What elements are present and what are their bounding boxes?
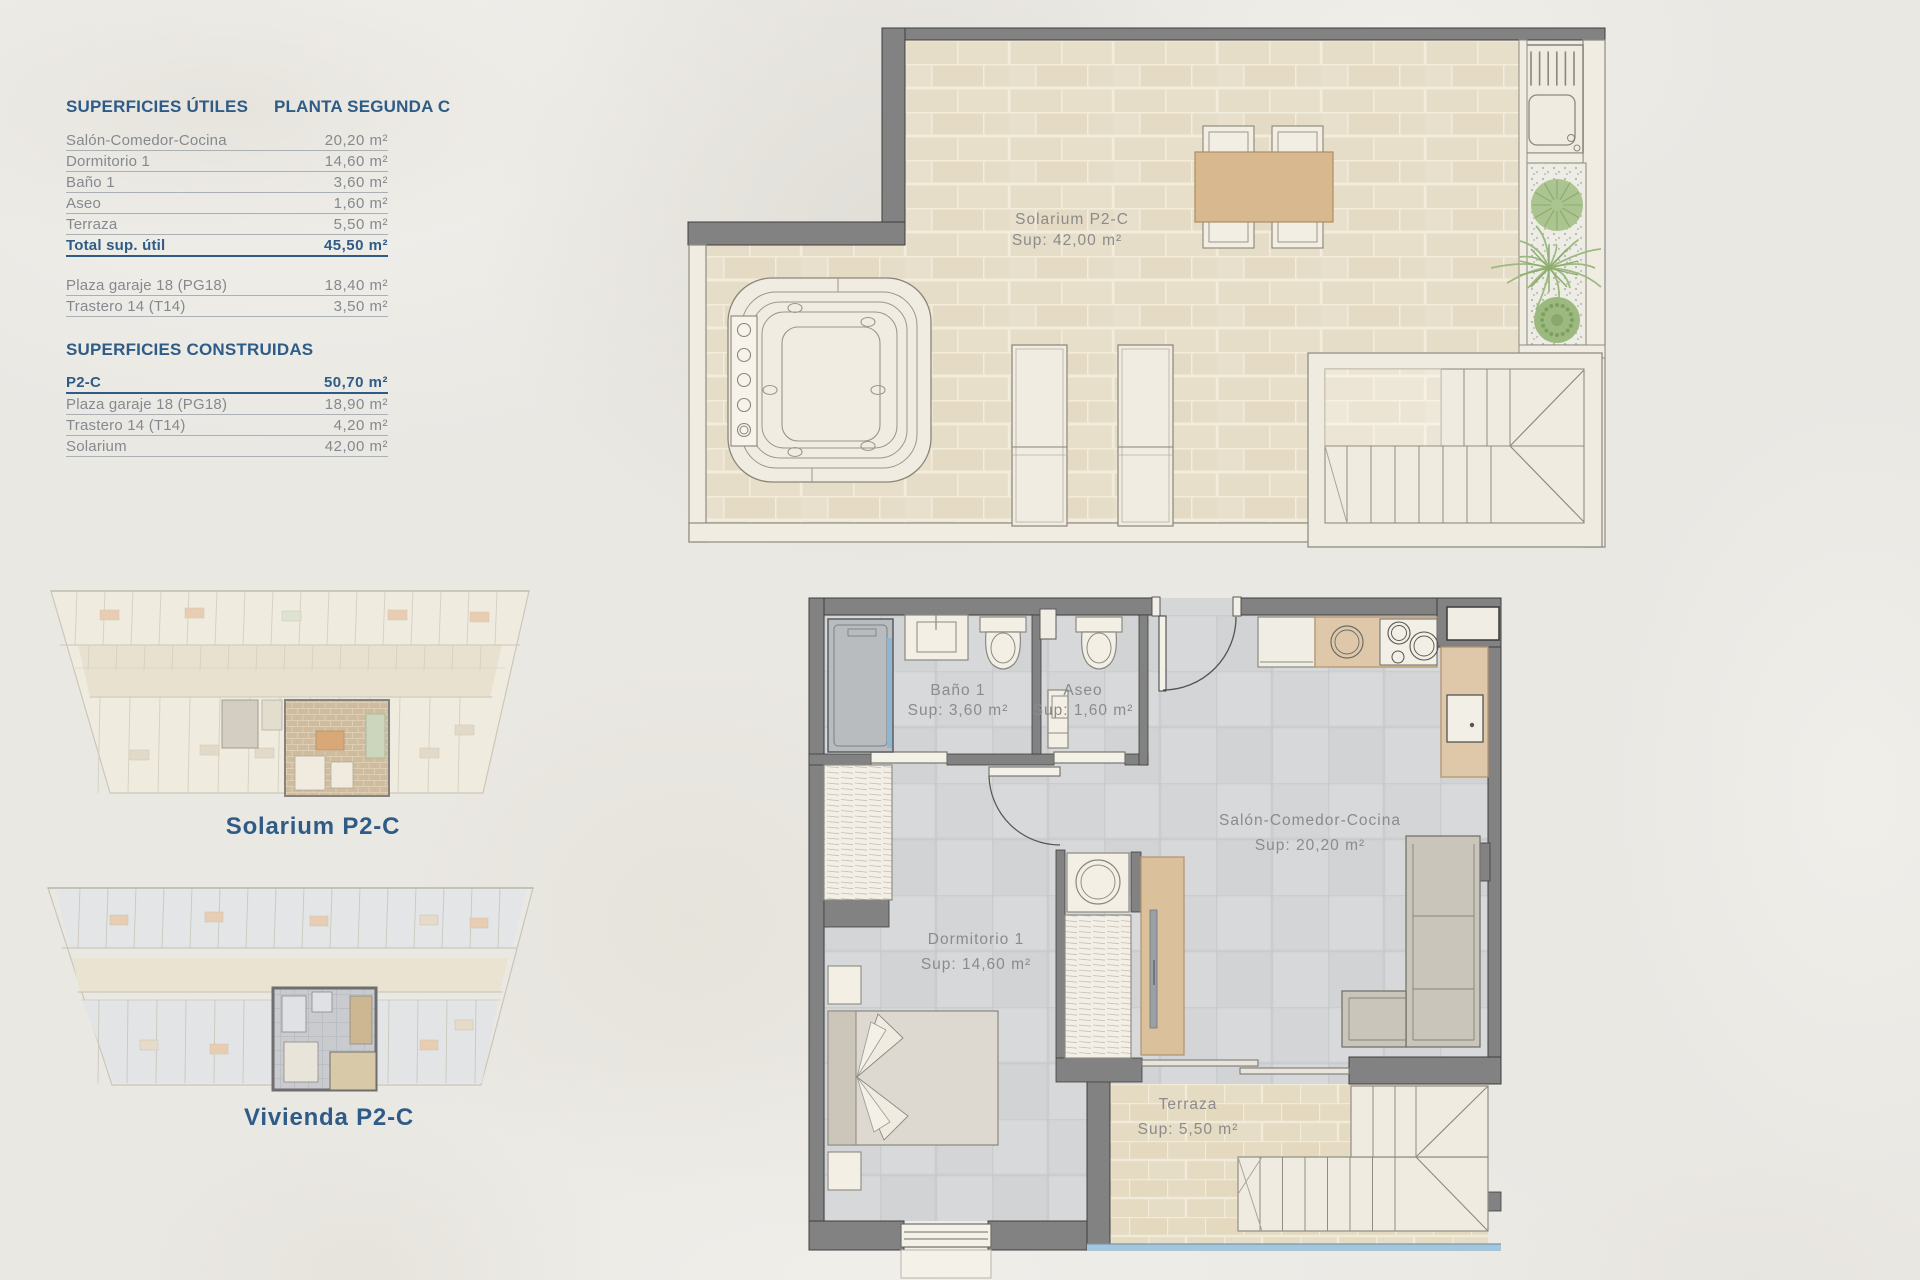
svg-text:Sup: 1,60 m²: Sup: 1,60 m² [1033, 702, 1134, 719]
svg-text:Dormitorio 1: Dormitorio 1 [928, 931, 1024, 948]
svg-text:Aseo: Aseo [1063, 682, 1102, 699]
svg-text:Terraza: Terraza [1159, 1096, 1218, 1113]
svg-text:Sup: 3,60 m²: Sup: 3,60 m² [908, 702, 1009, 719]
svg-text:Sup: 14,60 m²: Sup: 14,60 m² [921, 956, 1031, 973]
svg-text:Sup: 5,50 m²: Sup: 5,50 m² [1138, 1121, 1239, 1138]
svg-text:Sup: 20,20 m²: Sup: 20,20 m² [1255, 837, 1365, 854]
svg-text:Baño 1: Baño 1 [930, 682, 985, 699]
svg-text:Sup: 42,00 m²: Sup: 42,00 m² [1012, 232, 1122, 249]
svg-text:Salón-Comedor-Cocina: Salón-Comedor-Cocina [1219, 812, 1401, 829]
svg-text:Solarium P2-C: Solarium P2-C [1015, 211, 1129, 228]
svg-text:Vivienda P2-C: Vivienda P2-C [244, 1104, 414, 1131]
svg-text:Solarium P2-C: Solarium P2-C [226, 813, 400, 840]
